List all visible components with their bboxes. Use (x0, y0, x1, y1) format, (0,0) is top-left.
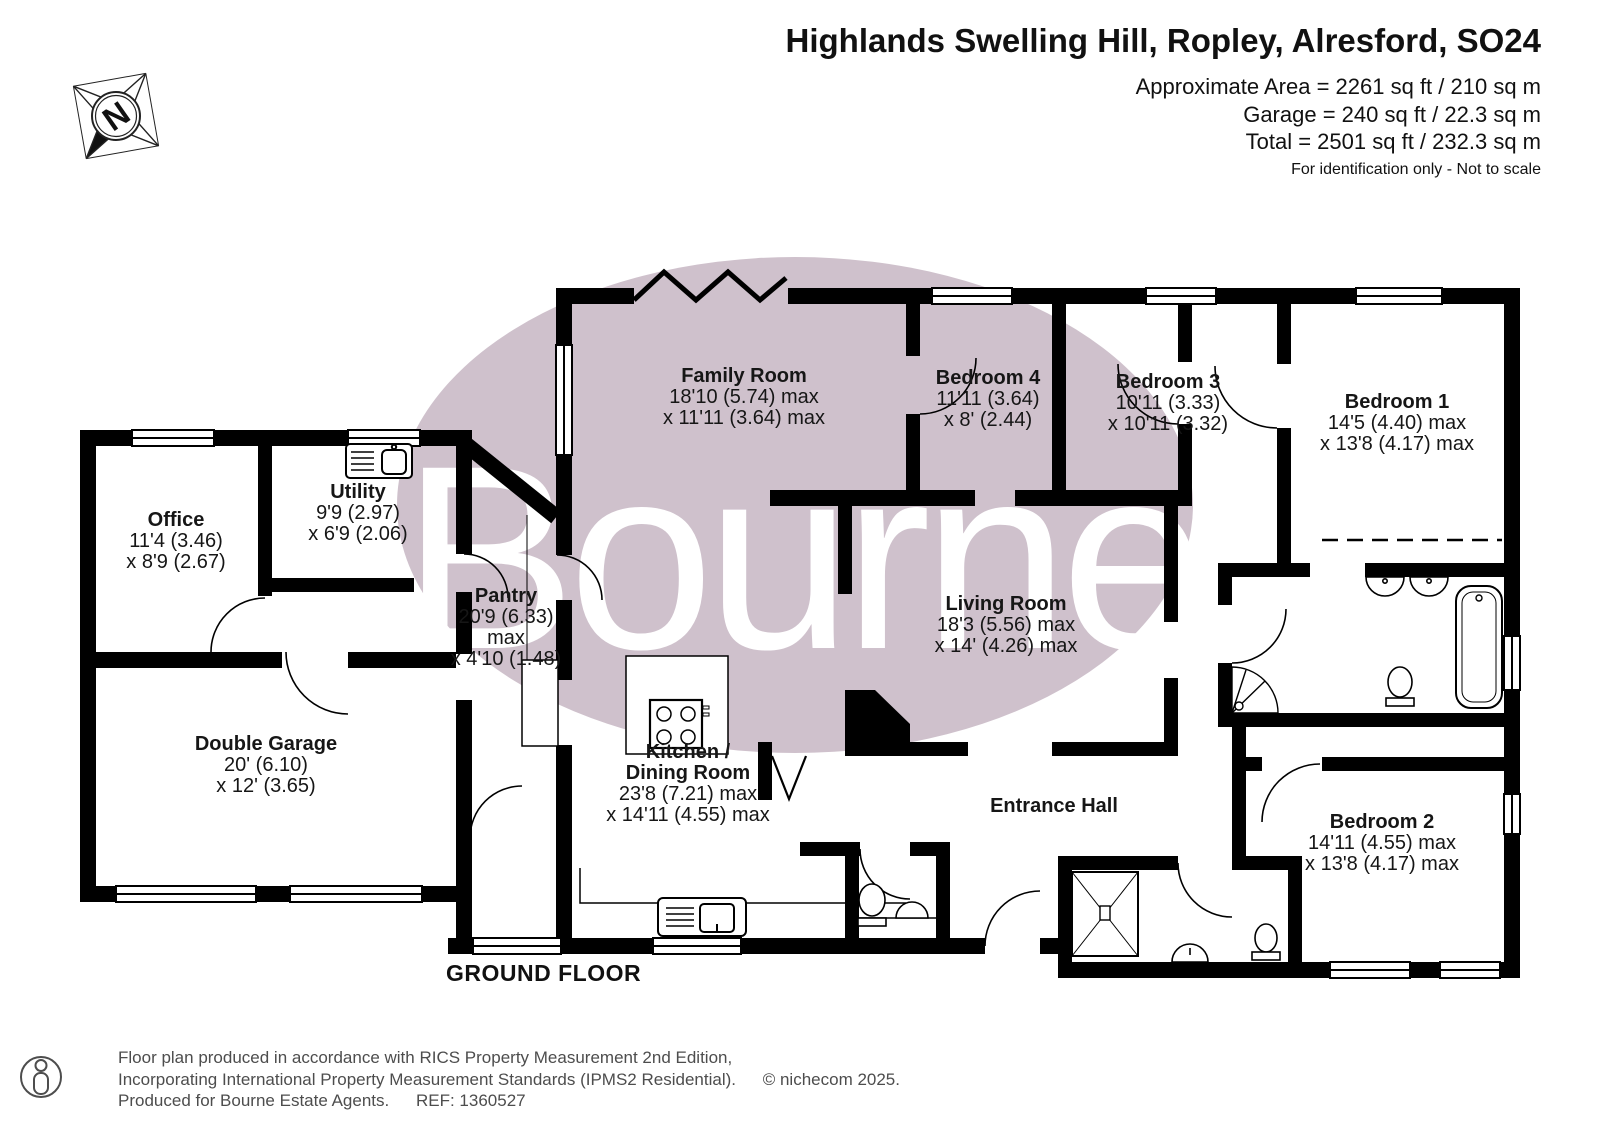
room-dims: 14'5 (4.40) max (1320, 413, 1474, 434)
room-dims: x 8'9 (2.67) (126, 552, 225, 573)
page-title: Highlands Swelling Hill, Ropley, Alresfo… (786, 22, 1541, 60)
wc-sink-icon (896, 902, 928, 918)
footer-copyright: © nichecom 2025. (763, 1070, 900, 1089)
room-label-bedroom-2: Bedroom 2 14'11 (4.55) max x 13'8 (4.17)… (1305, 812, 1459, 875)
ensuite-sinks-icon (1366, 577, 1448, 596)
room-name: Entrance Hall (990, 796, 1118, 817)
room-dims: x 14' (4.26) max (935, 636, 1078, 657)
room-name: Bedroom 3 (1108, 372, 1228, 393)
room-dims: 23'8 (7.21) max (606, 784, 770, 805)
footer-line-3: Produced for Bourne Estate Agents. REF: … (118, 1090, 900, 1112)
kitchen-island-hob-icon (626, 656, 728, 754)
wc-toilet-icon (851, 884, 936, 926)
room-dims: x 12' (3.65) (195, 776, 337, 797)
room-label-living-room: Living Room 18'3 (5.56) max x 14' (4.26)… (935, 594, 1078, 657)
shower-room-toilet-icon (1252, 924, 1280, 960)
room-dims: 18'3 (5.56) max (935, 615, 1078, 636)
footer-ref: REF: 1360527 (416, 1091, 526, 1110)
room-name: Pantry (451, 586, 562, 607)
room-label-office: Office 11'4 (3.46) x 8'9 (2.67) (126, 510, 225, 573)
ensuite-toilet-icon (1386, 667, 1414, 706)
scale-disclaimer: For identification only - Not to scale (1291, 161, 1541, 179)
room-name: Bedroom 2 (1305, 812, 1459, 833)
corner-shower-icon (1232, 667, 1278, 713)
room-dims: 20'9 (6.33) (451, 607, 562, 628)
footer-line-1: Floor plan produced in accordance with R… (118, 1047, 900, 1069)
room-name: Bedroom 4 (936, 368, 1040, 389)
room-name: Kitchen / (606, 742, 770, 763)
room-name: Bedroom 1 (1320, 392, 1474, 413)
room-label-kitchen-dining: Kitchen / Dining Room 23'8 (7.21) max x … (606, 742, 770, 826)
approximate-area: Approximate Area = 2261 sq ft / 210 sq m (1136, 73, 1541, 101)
room-dims: 18'10 (5.74) max (663, 387, 825, 408)
area-summary: Approximate Area = 2261 sq ft / 210 sq m… (1136, 73, 1541, 156)
room-dims: 9'9 (2.97) (308, 503, 407, 524)
room-dims: x 10'11 (3.32) (1108, 414, 1228, 435)
floor-title: GROUND FLOOR (446, 960, 641, 987)
room-dims: x 6'9 (2.06) (308, 524, 407, 545)
room-name: Office (126, 510, 225, 531)
room-dims: x 13'8 (4.17) max (1305, 854, 1459, 875)
room-dims: x 11'11 (3.64) max (663, 408, 825, 429)
room-dims: x 13'8 (4.17) max (1320, 434, 1474, 455)
bath-icon (1456, 586, 1502, 708)
shower-room-sink-icon (1172, 944, 1208, 962)
room-label-bedroom-4: Bedroom 4 11'11 (3.64) x 8' (2.44) (936, 368, 1040, 431)
kitchen-sink-icon (658, 898, 746, 936)
utility-sink-icon (346, 444, 412, 478)
room-name: Double Garage (195, 734, 337, 755)
footer-standards: Incorporating International Property Mea… (118, 1070, 736, 1089)
room-dims: x 14'11 (4.55) max (606, 805, 770, 826)
room-label-bedroom-1: Bedroom 1 14'5 (4.40) max x 13'8 (4.17) … (1320, 392, 1474, 455)
room-dims: max (451, 628, 562, 649)
double-door-icon (772, 756, 806, 799)
garage-area: Garage = 240 sq ft / 22.3 sq m (1136, 101, 1541, 129)
person-icon (18, 1054, 64, 1100)
room-label-utility: Utility 9'9 (2.97) x 6'9 (2.06) (308, 482, 407, 545)
room-label-bedroom-3: Bedroom 3 10'11 (3.33) x 10'11 (3.32) (1108, 372, 1228, 435)
room-name: Living Room (935, 594, 1078, 615)
room-dims: 10'11 (3.33) (1108, 393, 1228, 414)
total-area: Total = 2501 sq ft / 232.3 sq m (1136, 128, 1541, 156)
room-dims: x 8' (2.44) (936, 410, 1040, 431)
compass: N (73, 73, 158, 158)
room-dims: 14'11 (4.55) max (1305, 833, 1459, 854)
room-name: Family Room (663, 366, 825, 387)
room-label-entrance-hall: Entrance Hall (990, 796, 1118, 817)
footer-produced-for: Produced for Bourne Estate Agents. (118, 1091, 389, 1110)
room-dims: 11'11 (3.64) (936, 389, 1040, 410)
room-dims: 11'4 (3.46) (126, 531, 225, 552)
room-label-family-room: Family Room 18'10 (5.74) max x 11'11 (3.… (663, 366, 825, 429)
shower-cubicle-icon (1072, 872, 1138, 956)
footer-line-2: Incorporating International Property Mea… (118, 1069, 900, 1091)
room-name: Dining Room (606, 763, 770, 784)
room-dims: 20' (6.10) (195, 755, 337, 776)
room-label-pantry: Pantry 20'9 (6.33) max x 4'10 (1.48) (451, 586, 562, 670)
room-name: Utility (308, 482, 407, 503)
floorplan-page: Bourne (0, 0, 1599, 1131)
room-dims: x 4'10 (1.48) (451, 649, 562, 670)
footer-disclaimer: Floor plan produced in accordance with R… (118, 1047, 900, 1112)
room-label-double-garage: Double Garage 20' (6.10) x 12' (3.65) (195, 734, 337, 797)
